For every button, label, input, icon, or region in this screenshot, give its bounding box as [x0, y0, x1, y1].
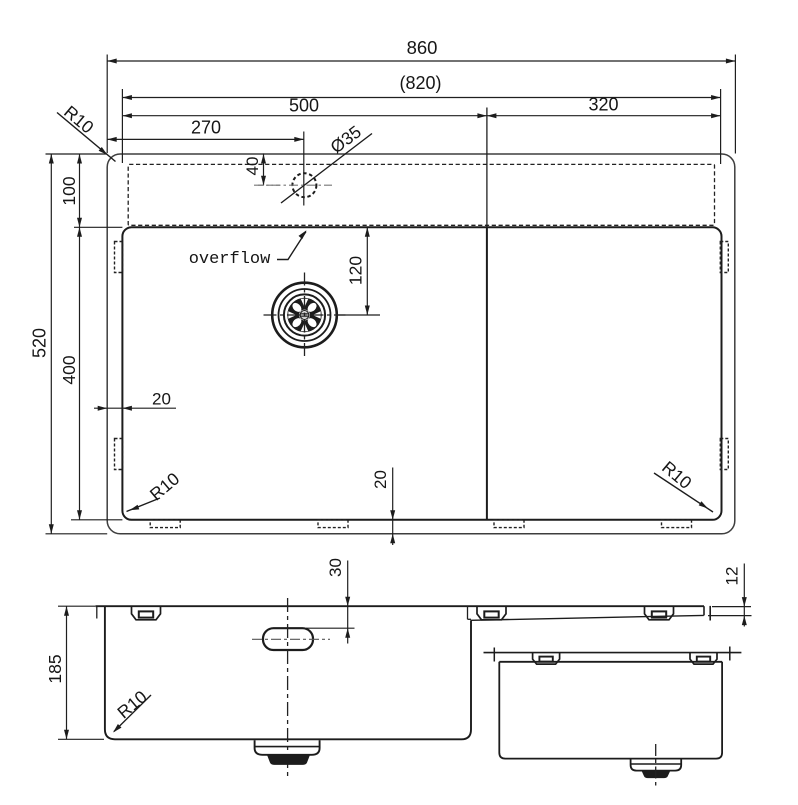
svg-text:500: 500 [289, 95, 319, 115]
svg-text:120: 120 [346, 256, 366, 285]
svg-text:320: 320 [588, 94, 618, 114]
svg-text:40: 40 [243, 157, 262, 176]
svg-text:400: 400 [59, 355, 79, 384]
svg-text:overflow: overflow [189, 250, 271, 269]
svg-text:860: 860 [407, 37, 438, 58]
svg-text:100: 100 [59, 176, 79, 205]
svg-text:20: 20 [152, 389, 171, 408]
svg-text:20: 20 [371, 470, 390, 489]
svg-text:(820): (820) [399, 73, 441, 93]
svg-text:185: 185 [45, 654, 65, 683]
svg-text:520: 520 [29, 328, 49, 358]
svg-text:30: 30 [326, 558, 345, 577]
svg-text:12: 12 [722, 567, 741, 586]
svg-text:270: 270 [191, 117, 221, 137]
